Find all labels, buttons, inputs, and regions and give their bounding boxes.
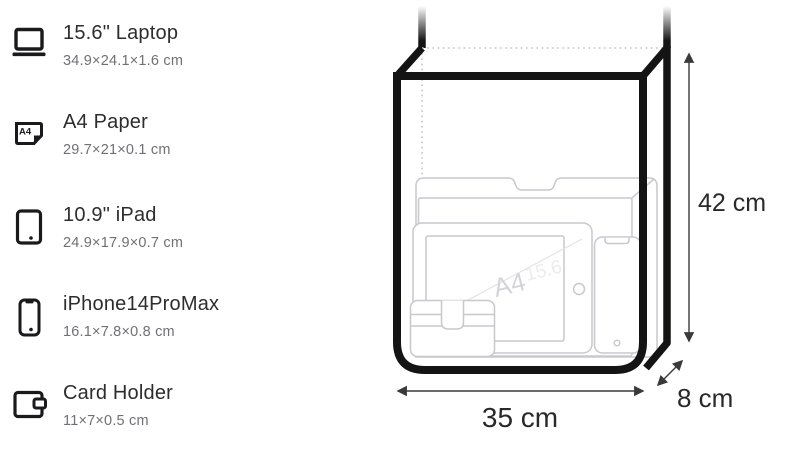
bag-dimensions-diagram: 15.6 A4 42 cm 35 cm 8 cm: [0, 0, 800, 455]
product-dimensions-infographic: 15.6" Laptop 34.9×24.1×1.6 cm A4 A4 Pape…: [0, 0, 800, 455]
phone-outline: [595, 237, 642, 353]
depth-label: 8 cm: [677, 383, 733, 413]
depth-arrow: [658, 361, 682, 385]
phone-notch: [605, 238, 629, 244]
height-label: 42 cm: [698, 189, 766, 217]
width-label: 35 cm: [482, 402, 558, 433]
card-holder-snap: [442, 301, 464, 330]
